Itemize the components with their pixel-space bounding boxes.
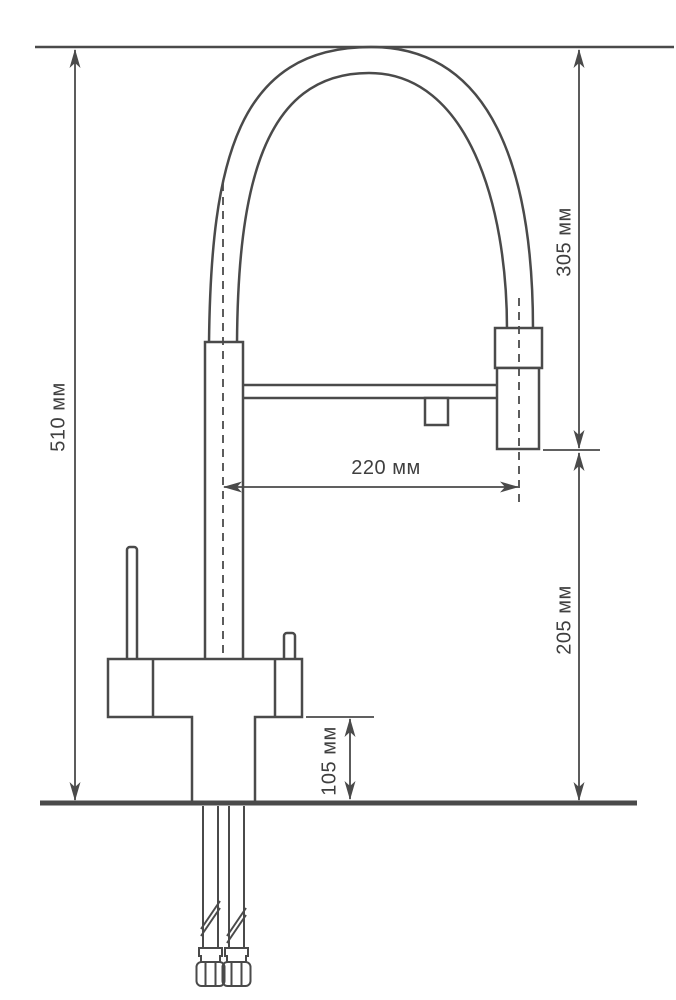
hose-fitting-flange bbox=[199, 948, 222, 962]
riser-column bbox=[205, 342, 243, 660]
dimension-label-510: 510 мм bbox=[47, 382, 69, 451]
diverter-button bbox=[425, 398, 448, 425]
dimension-base-height: 105 мм bbox=[306, 717, 374, 800]
faucet-outline bbox=[108, 47, 542, 986]
hose-fitting-nut bbox=[197, 962, 225, 986]
dimension-overall-height: 510 мм bbox=[47, 49, 80, 801]
dimension-top-to-spout-outlet: 305 мм bbox=[543, 49, 600, 450]
dimension-label-220: 220 мм bbox=[351, 457, 420, 479]
supply-hose-right bbox=[223, 806, 251, 986]
spout-arc-outer bbox=[209, 47, 533, 343]
dimension-label-305: 305 мм bbox=[553, 207, 575, 276]
hose-fitting-flange bbox=[225, 948, 248, 962]
mixer-lever-handle bbox=[127, 547, 137, 663]
base-body bbox=[108, 659, 302, 802]
dimension-spout-outlet-to-counter: 205 мм bbox=[553, 452, 584, 801]
spout-arc-inner bbox=[237, 73, 507, 343]
dimension-label-105: 105 мм bbox=[318, 726, 340, 795]
diagram-svg: 510 мм 305 мм 205 мм 220 мм bbox=[0, 0, 676, 1000]
faucet-dimension-diagram: 510 мм 305 мм 205 мм 220 мм bbox=[0, 0, 676, 1000]
spout-body bbox=[497, 368, 539, 449]
hose-fitting-nut bbox=[223, 962, 251, 986]
dimension-label-205: 205 мм bbox=[553, 585, 575, 654]
supply-hose-left bbox=[197, 806, 225, 986]
dimension-spout-reach: 220 мм bbox=[223, 457, 519, 493]
